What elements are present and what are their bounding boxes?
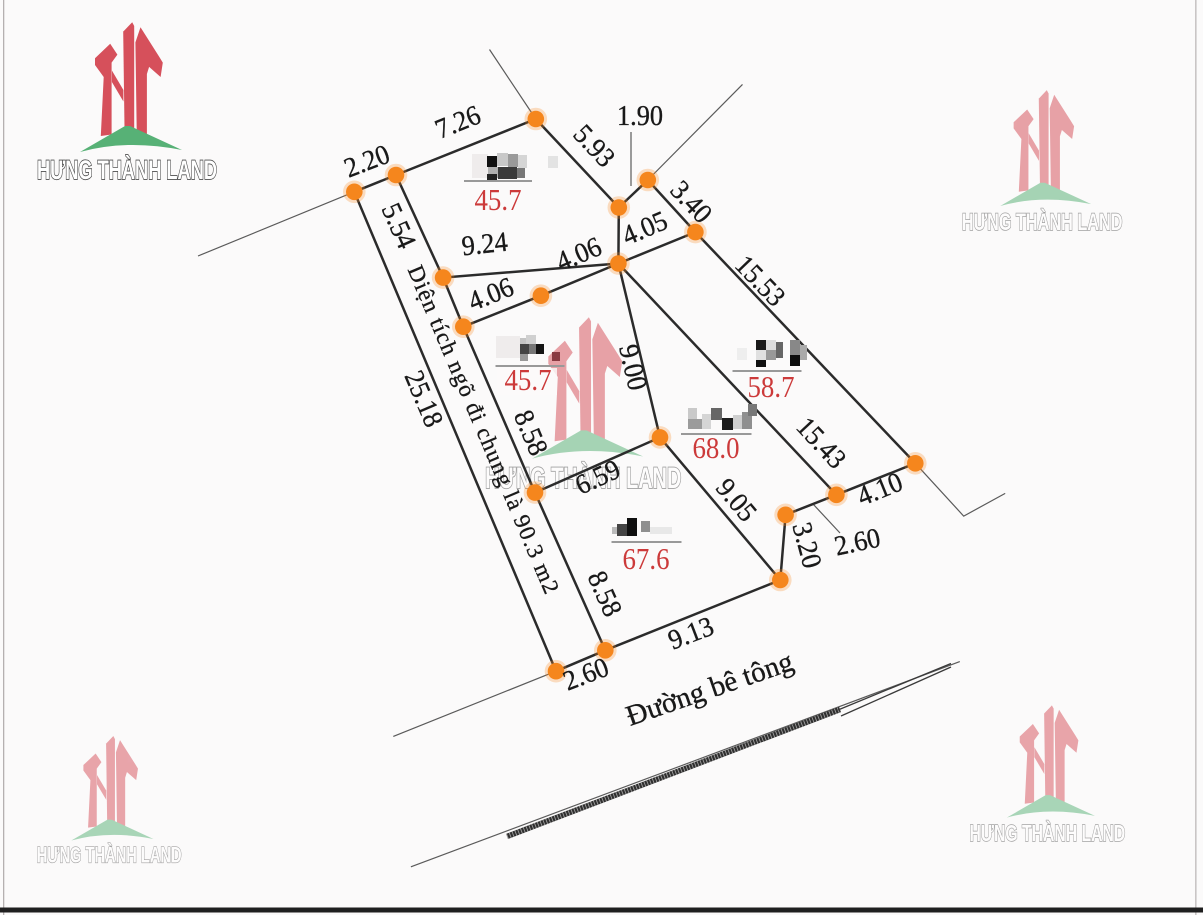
svg-text:58.7: 58.7	[748, 369, 795, 404]
svg-text:2.60: 2.60	[832, 523, 883, 563]
svg-text:67.6: 67.6	[623, 541, 670, 576]
svg-text:15.53: 15.53	[729, 250, 792, 313]
svg-text:Đường bê tông: Đường bê tông	[622, 646, 797, 733]
svg-text:5.93: 5.93	[567, 119, 621, 174]
svg-text:1.90: 1.90	[617, 101, 663, 132]
svg-text:9.00: 9.00	[612, 342, 653, 394]
svg-text:3.40: 3.40	[664, 175, 718, 230]
svg-text:9.13: 9.13	[664, 611, 718, 656]
svg-text:68.0: 68.0	[693, 430, 740, 465]
svg-text:3.20: 3.20	[785, 519, 827, 571]
svg-text:9.24: 9.24	[460, 227, 509, 263]
svg-text:45.7: 45.7	[475, 182, 522, 217]
svg-text:45.7: 45.7	[505, 362, 552, 397]
svg-text:9.05: 9.05	[709, 473, 762, 528]
svg-text:5.54: 5.54	[375, 199, 422, 254]
svg-text:7.26: 7.26	[431, 100, 485, 146]
svg-text:15.43: 15.43	[790, 412, 852, 476]
svg-text:4.10: 4.10	[853, 467, 907, 513]
svg-text:4.06: 4.06	[464, 272, 518, 318]
